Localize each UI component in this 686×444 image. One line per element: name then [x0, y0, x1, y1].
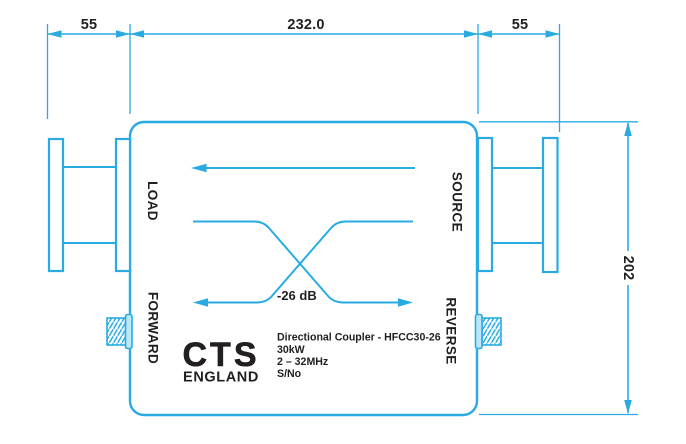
spec-line-model: Directional Coupler - HFCC30-26 [277, 332, 441, 344]
technical-drawing-svg: 55 232.0 55 202 [0, 0, 686, 444]
arrowhead-icon [546, 30, 560, 38]
flange-plate-inner [116, 139, 130, 271]
arrowhead-icon [464, 30, 478, 38]
dimension-label-left-flange: 55 [81, 17, 98, 33]
port-label-forward: FORWARD [145, 292, 160, 364]
flange-plate-outer [543, 138, 558, 272]
load-port-flange [49, 139, 130, 271]
flange-plate-inner [478, 138, 492, 271]
arrowhead-icon [48, 30, 62, 38]
connector-thread [107, 318, 126, 345]
cts-england-logo: CTS ENGLAND [183, 336, 260, 386]
logo-england-text: ENGLAND [183, 370, 259, 386]
forward-port-connector [107, 315, 132, 349]
connector-plate [476, 315, 483, 349]
coupling-value-label: -26 dB [277, 288, 317, 303]
spec-line-frequency: 2 – 32MHz [277, 356, 328, 368]
port-label-load: LOAD [145, 181, 160, 221]
connector-thread [482, 318, 501, 345]
reverse-port-connector [476, 315, 502, 349]
spec-line-power: 30kW [277, 344, 305, 356]
arrowhead-icon [130, 30, 144, 38]
arrowhead-icon [624, 122, 632, 136]
dimension-label-right-flange: 55 [512, 17, 529, 33]
spec-line-serial: S/No [277, 368, 302, 380]
connector-plate [126, 315, 133, 349]
dimension-label-body-height: 202 [620, 256, 636, 281]
dimension-label-body-width: 232.0 [287, 17, 324, 33]
source-port-flange [478, 138, 558, 272]
arrowhead-icon [624, 400, 632, 414]
logo-cts-text: CTS [183, 336, 260, 374]
flange-plate-outer [49, 139, 63, 271]
arrowhead-icon [478, 30, 492, 38]
port-label-source: SOURCE [449, 172, 464, 232]
top-dimension-chain: 55 232.0 55 [48, 17, 560, 132]
arrowhead-icon [116, 30, 130, 38]
port-label-reverse: REVERSE [443, 297, 458, 364]
drawing-canvas: 55 232.0 55 202 [0, 0, 686, 444]
